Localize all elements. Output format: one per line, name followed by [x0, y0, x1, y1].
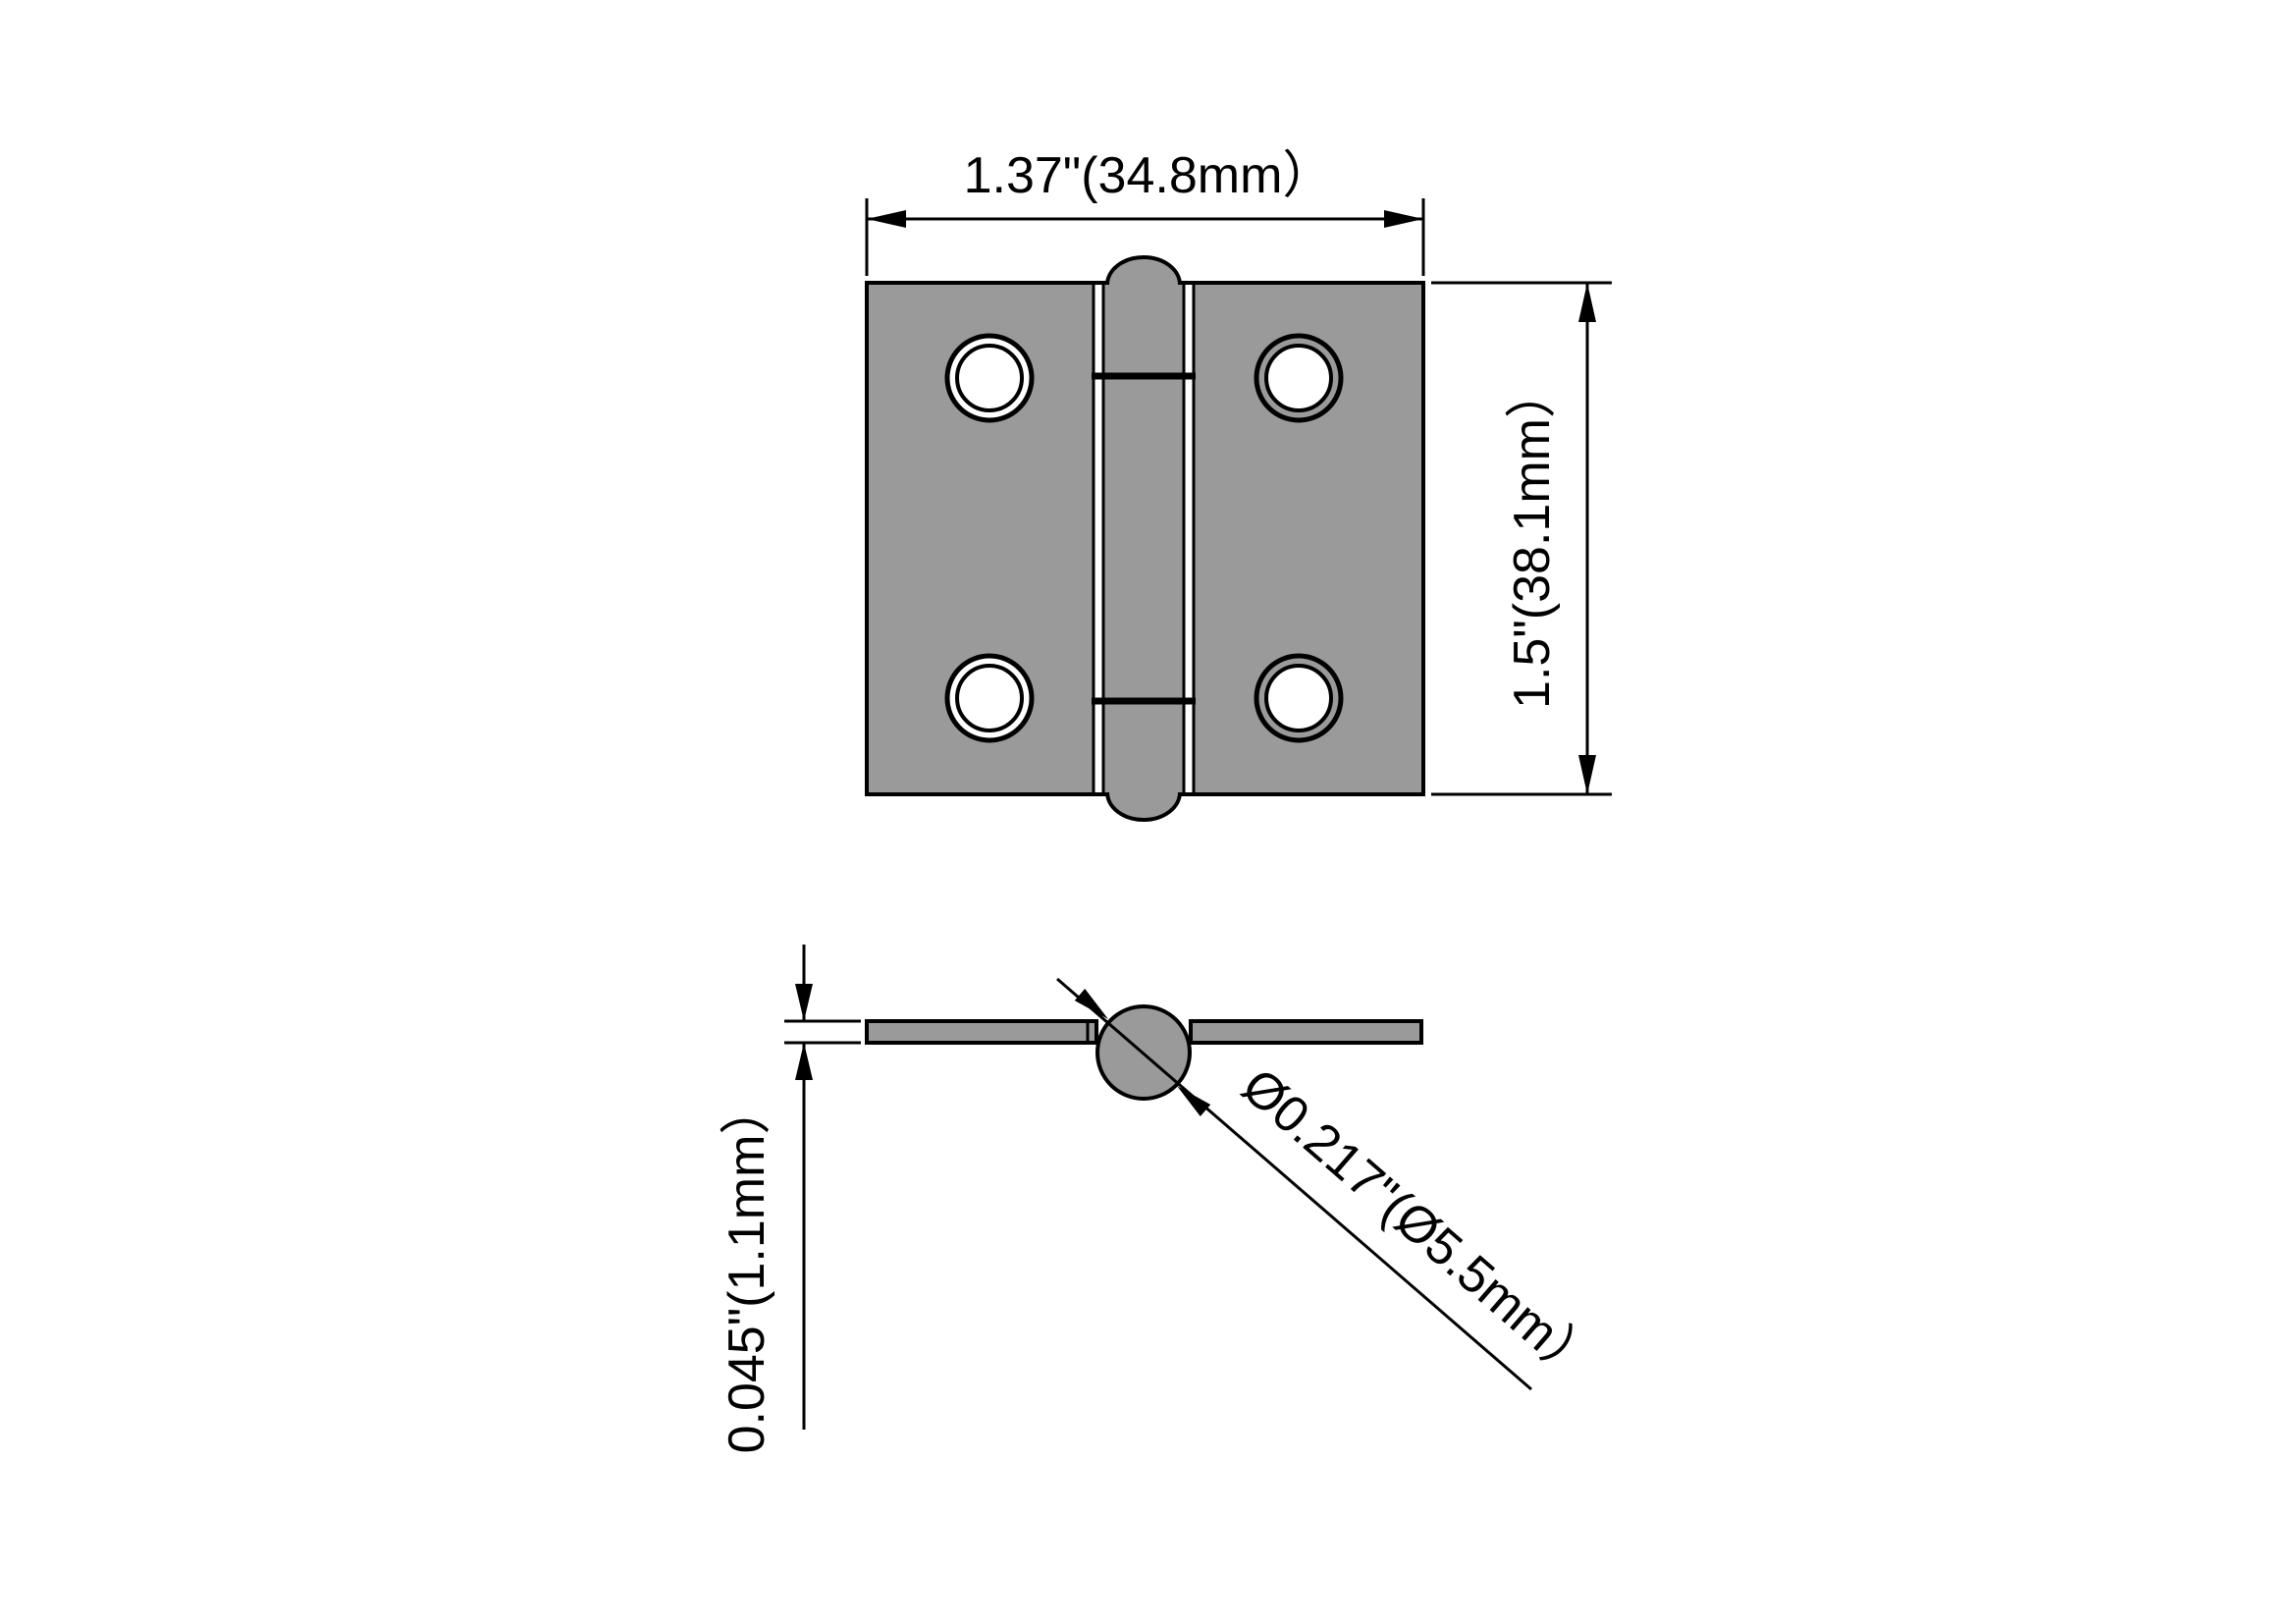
screw-hole-bottom-left	[947, 656, 1032, 740]
arrowhead-upper	[1075, 989, 1108, 1019]
pin-bottom-fill	[1107, 792, 1180, 820]
hole-inner-ring	[1266, 346, 1331, 410]
hole-inner-ring	[1266, 666, 1331, 730]
arrowhead-top	[1578, 283, 1596, 322]
top-view	[867, 257, 1423, 820]
arrowhead-lower	[1177, 1086, 1210, 1116]
hole-inner-ring	[957, 666, 1022, 730]
pin-top-fill	[1107, 257, 1180, 285]
arrowhead-bottom	[1578, 755, 1596, 794]
screw-hole-bottom-right	[1256, 656, 1341, 740]
screw-hole-top-right	[1256, 336, 1341, 420]
arrowhead-up	[795, 1043, 813, 1080]
height-dimension-label: 1.5"(38.1mm）	[1504, 367, 1561, 709]
arrowhead-left	[867, 210, 906, 228]
height-dimension: 1.5"(38.1mm）	[1431, 283, 1612, 794]
arrowhead-right	[1384, 210, 1423, 228]
screw-hole-top-left	[947, 336, 1032, 420]
right-leaf-edge	[1191, 1021, 1421, 1043]
technical-drawing-canvas: 1.37"(34.8mm） 1.5"(38.1mm） 0.045"(1	[0, 0, 2296, 1623]
thickness-dimension: 0.045"(1.1mm）	[719, 945, 861, 1453]
hole-inner-ring	[957, 346, 1022, 410]
hinge-drawing: 1.37"(34.8mm） 1.5"(38.1mm） 0.045"(1	[0, 0, 2296, 1623]
width-dimension-label: 1.37"(34.8mm）	[964, 147, 1334, 204]
thickness-dimension-label: 0.045"(1.1mm）	[719, 1084, 775, 1454]
left-leaf-edge	[867, 1021, 1096, 1043]
arrowhead-down	[795, 984, 813, 1021]
pin-diameter-label: Ø0.217"(Ø5.5mm）	[1231, 1057, 1607, 1395]
